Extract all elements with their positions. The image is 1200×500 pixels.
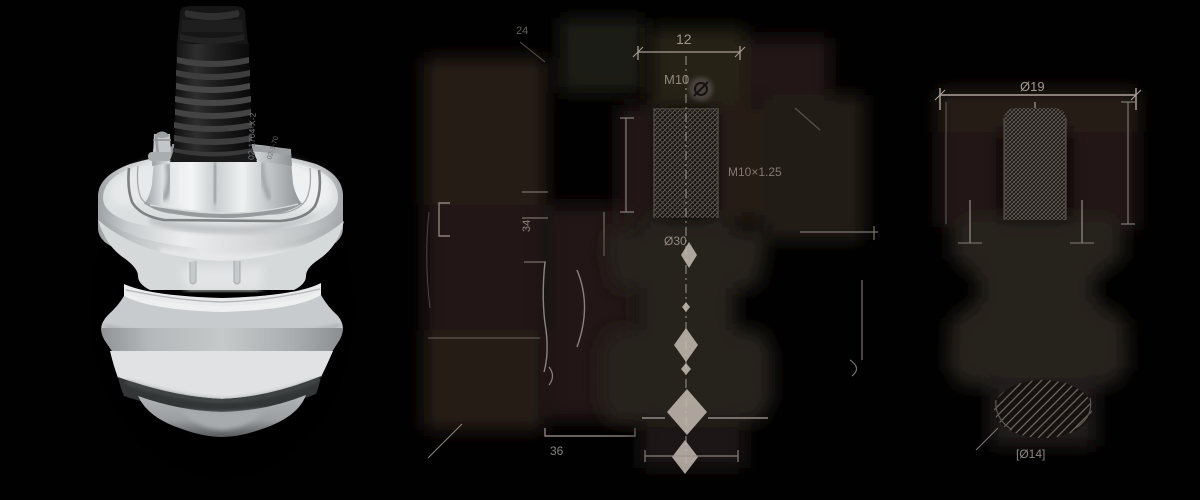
svg-text:[Ø14]: [Ø14] <box>1016 447 1045 461</box>
svg-text:36: 36 <box>550 444 564 458</box>
svg-text:24: 24 <box>516 25 528 37</box>
svg-text:02-1704-X-2: 02-1704-X-2 <box>246 112 258 160</box>
svg-text:12: 12 <box>676 31 692 47</box>
svg-text:M10×1.25: M10×1.25 <box>728 165 782 179</box>
svg-text:M10: M10 <box>664 72 689 87</box>
svg-text:Ø19: Ø19 <box>1020 79 1045 94</box>
svg-text:Ø30: Ø30 <box>664 234 687 248</box>
svg-text:34: 34 <box>521 220 533 232</box>
